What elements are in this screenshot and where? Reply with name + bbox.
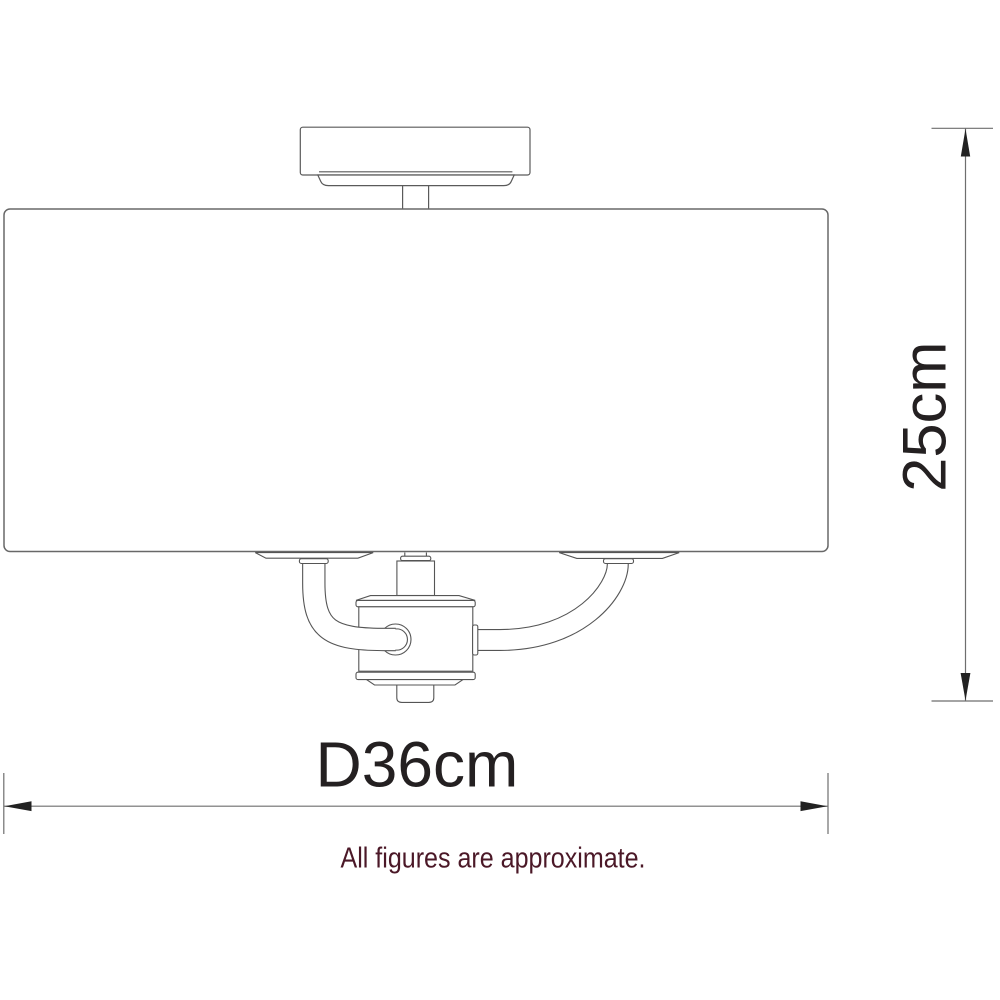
svg-text:25cm: 25cm: [891, 342, 960, 492]
svg-text:D36cm: D36cm: [316, 729, 519, 801]
svg-text:All figures are approximate.: All figures are approximate.: [341, 843, 646, 875]
